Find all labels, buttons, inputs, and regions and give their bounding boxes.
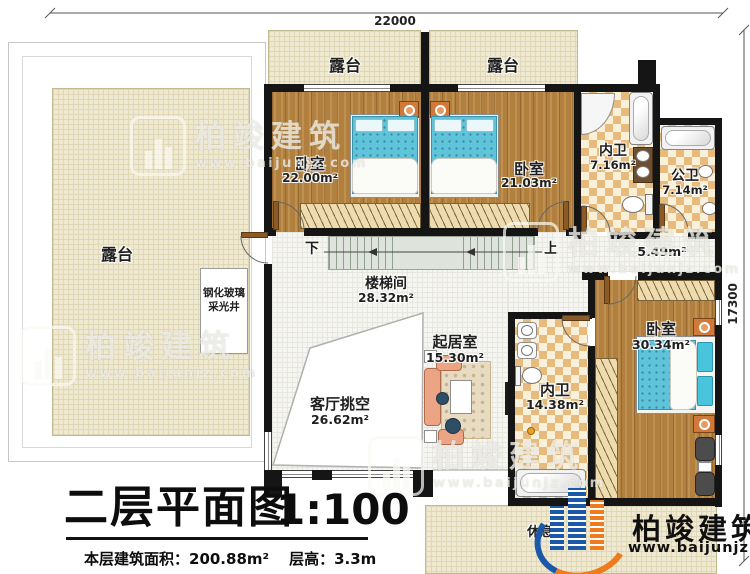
plant (445, 418, 461, 434)
window (264, 432, 272, 470)
bed-pillow (434, 119, 462, 132)
room-area-public-bath: 7.14m² (662, 184, 707, 196)
stair-label-down: 下 (305, 242, 319, 257)
floor-drain (527, 427, 535, 435)
sink-basin (521, 345, 533, 356)
wall (264, 264, 272, 432)
room-label-terrace-top-left: 露台 (329, 58, 361, 75)
door-leaf (241, 232, 268, 238)
lightwell-label-line1: 钢化玻璃 (203, 288, 245, 299)
room-area-bedroom-top-left: 22.00m² (282, 172, 338, 185)
logo-building-icon (568, 488, 586, 550)
floor-height-text: 层高：3.3m (289, 550, 376, 568)
logo-url-text: www.baijunjz.com (628, 540, 750, 556)
bathtub (629, 92, 653, 145)
room-label-terrace-left: 露台 (101, 247, 133, 264)
wall (421, 84, 429, 232)
floor-area-text: 本层建筑面积：200.88m² (84, 550, 269, 568)
wall (688, 232, 722, 239)
sink-basin (636, 150, 650, 162)
door-leaf (562, 315, 590, 321)
sink-basin (636, 166, 650, 178)
door-leaf (273, 201, 279, 230)
room-label-ensuite-bath-top: 内卫 (599, 144, 627, 159)
bathtub (661, 126, 715, 150)
room-area-ensuite-bath-master: 14.38m² (526, 398, 584, 411)
stair-treads-right (463, 237, 534, 269)
room-label-terrace-top-right: 露台 (487, 58, 519, 75)
room-label-public-bath: 公卫 (671, 169, 699, 184)
bed-pillow (697, 376, 713, 406)
plan-stats: 本层建筑面积：200.88m²层高：3.3m (84, 548, 396, 569)
dimension-right: 17300 (726, 283, 740, 325)
wall-duct (638, 60, 656, 86)
wall-pier (413, 470, 433, 497)
wall (574, 84, 581, 236)
room-label-stairwell: 楼梯间 (365, 277, 407, 292)
room-area-master-bedroom: 30.34m² (632, 338, 690, 351)
window (282, 470, 312, 478)
plan-scale: 1:100 (276, 489, 410, 531)
wall (610, 232, 660, 239)
nightstand (693, 318, 715, 336)
room-label-master-bedroom: 卧室 (646, 322, 676, 338)
dimension-top: 22000 (358, 14, 432, 28)
room-label-living-room: 起居室 (432, 335, 477, 351)
wall (655, 118, 722, 125)
bed-pillow (466, 119, 494, 132)
sink-basin (521, 325, 533, 336)
plant (436, 392, 449, 405)
nightstand (693, 415, 715, 433)
stairs (328, 236, 535, 270)
bed-pillow (387, 119, 415, 132)
room-area-ensuite-bath-top: 7.16m² (590, 159, 635, 171)
wall (304, 228, 538, 236)
door-leaf (659, 204, 665, 232)
stair-label-up: 上 (544, 242, 558, 257)
door-leaf (604, 276, 610, 304)
side-table (424, 430, 437, 443)
hall-floor-patch (508, 272, 588, 312)
wall-terrace-divider (421, 32, 429, 84)
wardrobe (300, 203, 421, 229)
bed-duvet (352, 158, 418, 194)
logo-building-icon (550, 506, 564, 550)
window (715, 300, 722, 325)
wardrobe (637, 280, 715, 301)
wall-pier (312, 470, 332, 480)
bed-duvet (431, 158, 497, 194)
room-area-living-void: 26.62m² (311, 413, 369, 426)
window (332, 470, 413, 478)
wall (508, 312, 515, 505)
plan-title: 二层平面图 (64, 486, 294, 530)
window (304, 84, 390, 92)
lounge-chair (695, 437, 715, 461)
title-underline (66, 537, 368, 540)
wall (638, 272, 722, 280)
toilet-tank (515, 366, 521, 386)
door-leaf (581, 206, 587, 234)
room-area-bedroom-top-right: 21.03m² (501, 177, 557, 190)
door-leaf (563, 201, 569, 230)
sink-basin (698, 165, 713, 178)
wall (264, 84, 272, 232)
room-label-living-void: 客厅挑空 (310, 397, 370, 413)
window (715, 435, 722, 465)
coffee-table (450, 380, 472, 414)
stair-treads-left (329, 237, 397, 269)
bed-pillow (697, 342, 713, 372)
room-area-hallway: 5.49m² (637, 245, 686, 258)
wall (715, 325, 722, 435)
toilet (622, 196, 644, 213)
wardrobe (429, 203, 530, 229)
lightwell-label-line2: 采光井 (208, 302, 240, 313)
logo-building-icon (590, 500, 604, 550)
window (458, 84, 545, 92)
side-table (698, 462, 712, 472)
bed-pillow (355, 119, 383, 132)
company-logo: 柏竣建筑 www.baijunjz.com (536, 476, 748, 574)
room-area-living-room: 15.30m² (426, 351, 484, 364)
toilet-tank (645, 194, 653, 215)
room-area-stairwell: 28.32m² (358, 292, 414, 305)
terrace-left-floor (52, 88, 250, 436)
floor-plan: 露台 露台 露台 卧室 22.00m² 卧室 21.03m² 内卫 7.16m²… (0, 0, 750, 574)
